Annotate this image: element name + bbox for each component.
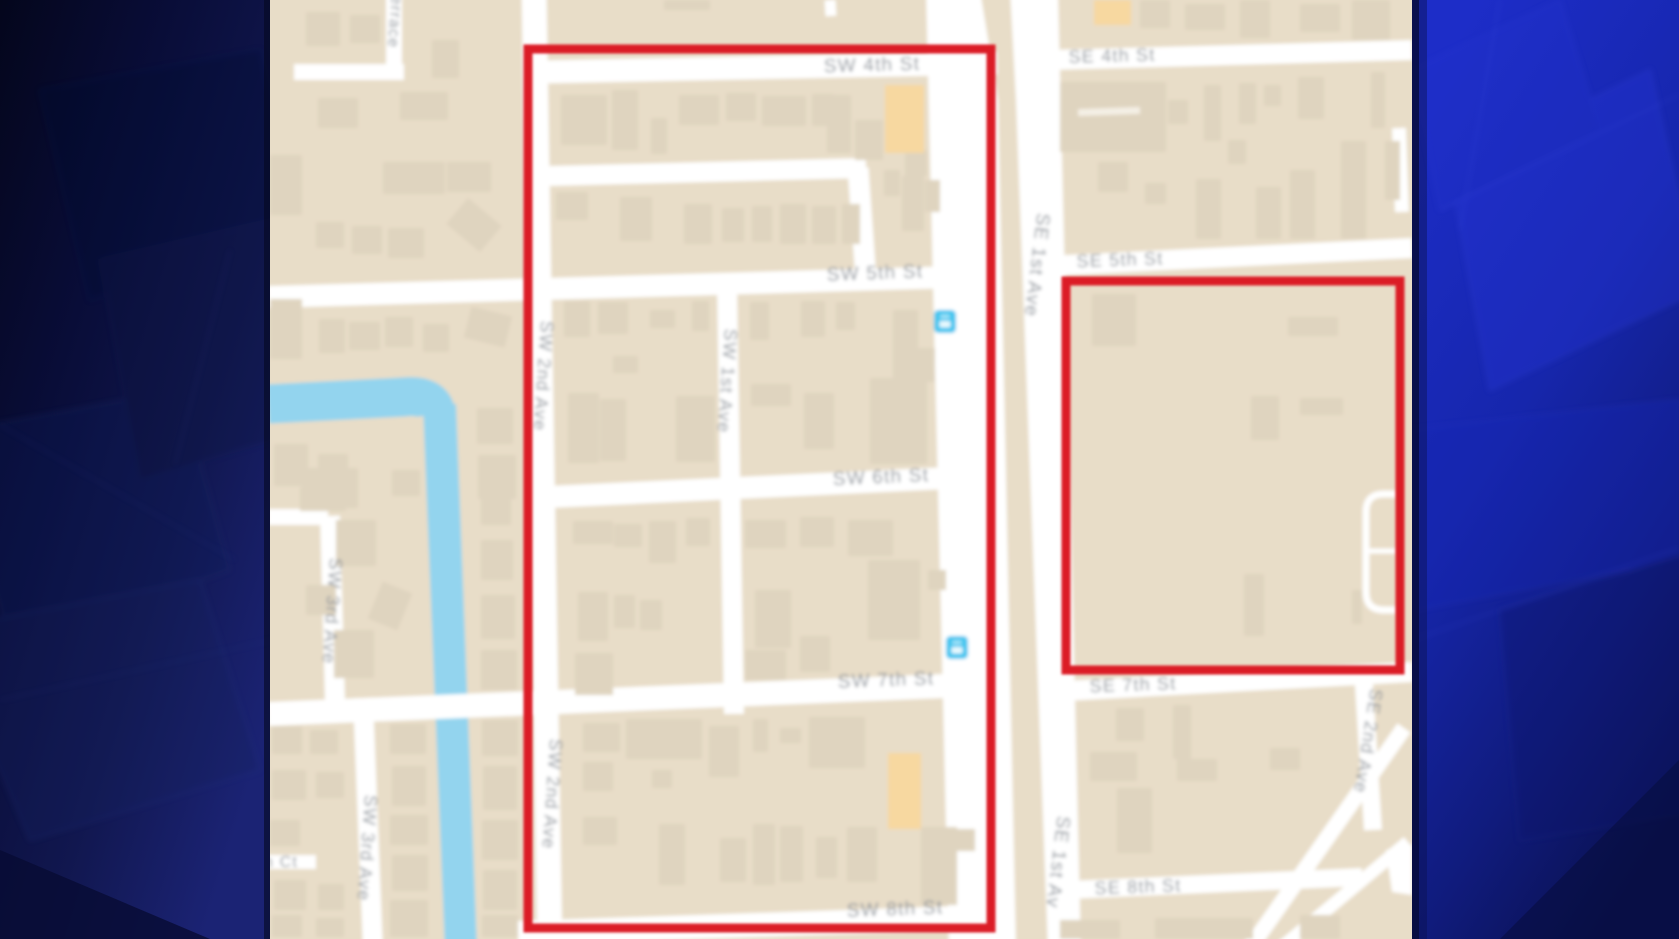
svg-text:SW 8th St: SW 8th St — [846, 897, 943, 921]
svg-text:SE 5th St: SE 5th St — [1076, 248, 1163, 271]
svg-text:SW 7th St: SW 7th St — [837, 668, 934, 692]
svg-text:SW 5th St: SW 5th St — [826, 261, 923, 285]
svg-text:SE 7th St: SE 7th St — [1089, 673, 1176, 696]
svg-text:SE 8th St: SE 8th St — [1094, 875, 1181, 898]
svg-text:errace: errace — [384, 0, 405, 49]
svg-text:SW 4th St: SW 4th St — [824, 54, 921, 78]
svg-text:SE 4th St: SE 4th St — [1068, 45, 1155, 67]
svg-text:SW 6th St: SW 6th St — [832, 465, 929, 490]
